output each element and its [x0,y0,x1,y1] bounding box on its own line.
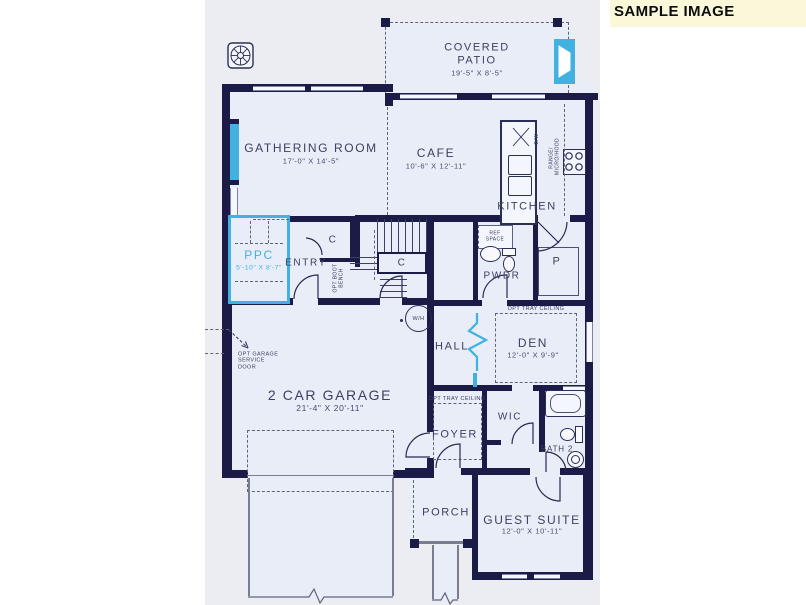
wall [385,93,393,106]
range-icon [563,149,586,175]
window [492,94,545,99]
closet-label-stairs: C [398,257,407,269]
counter-line [564,104,565,216]
porch-post [410,539,419,548]
floor-plan: COVERED PATIO 19'-5" X 8'-5" GATHERING R… [205,0,600,605]
fireplace-icon [554,39,575,84]
garage-dims: 21'-4" X 20'-11" [296,404,363,414]
window [502,574,527,579]
driveway-edge [248,478,250,596]
stair-winders [350,252,377,270]
ppc-dims: 5'-10" X 8'-7" [236,264,282,271]
driveway-edge [392,478,394,596]
room-divider-dash [387,107,388,215]
walkway-edge [457,545,459,599]
sample-image-label: SAMPLE IMAGE [610,0,806,20]
kitchen-label: KITCHEN [497,201,556,214]
porch-post [463,539,472,548]
opt-boot-bench-label: OPT BOOT BENCH [333,262,345,294]
bath-toilet-tank [575,426,583,443]
opt-tray-ceiling-label-foyer: OPT TRAY CEILING [429,396,486,402]
wall [585,93,593,475]
covered-patio-label: COVERED PATIO [444,41,510,66]
bath2-label: BATH 2 [541,444,573,453]
wall [485,440,501,445]
ref-space-label: REF SPACE [483,231,507,243]
service-door-callout-dash [205,353,224,354]
pwdr-toilet-tank [502,248,516,256]
wall [427,215,434,307]
cafe-dims: 10'-6" X 12'-11" [406,163,467,172]
garage-door-dashed-box [247,430,394,492]
wall [318,298,380,305]
wall [472,572,593,580]
porch-edge-dash [413,480,414,538]
window [586,322,594,362]
ppc-label: PPC [244,249,273,263]
bathtub-basin [550,394,581,413]
water-heater-label: W/H [413,315,425,321]
walkway-edge [432,545,434,599]
range-micro-hood-label: RANGE/ MICRO/HOOD [549,141,561,175]
wall [222,84,393,92]
garage-label: 2 CAR GARAGE [268,387,392,403]
pwdr-sink [480,246,501,262]
window [311,86,363,91]
gathering-room-label: GATHERING ROOM [244,142,378,156]
den-label: DEN [518,337,548,351]
opt-garage-service-door-label: OPT GARAGE SERVICE DOOR [238,352,280,371]
driveway [248,478,393,599]
window-cap [230,180,239,185]
hall-label: HALL [435,341,469,354]
closet-divider [268,221,269,243]
window [230,188,238,216]
window [400,94,457,99]
bath-sink-basin [571,455,580,464]
entry-label: ENTRY [285,257,327,269]
kitchen-sink [508,155,532,175]
wic-label: WIC [498,411,522,423]
wall [222,300,232,478]
porch-label: PORCH [422,507,470,520]
water-heater-dot [400,319,403,322]
wall [427,385,512,391]
gathering-room-dims: 17'-0" X 14'-5" [283,158,339,167]
closet-rod [235,281,283,282]
dishwasher-label: D/W [535,134,541,145]
window-cap [230,119,239,124]
opt-tray-ceiling-label-den: OPT TRAY CEILING [508,306,565,312]
opening-dash [253,219,289,220]
covered-patio-dims: 19'-5" X 8'-5" [451,70,503,79]
kitchen-sink [508,176,532,196]
hall-accent [473,373,477,387]
wall [290,216,356,222]
closet-label-entry: C [329,234,338,246]
closet-divider [250,221,251,243]
patio-post [553,18,562,27]
window [534,574,560,579]
guest-suite-dims: 12'-0" X 10'-11" [502,528,563,537]
cafe-label: CAFE [417,147,455,161]
pwdr-label: PWDR [484,270,521,282]
closet-rod [235,243,283,244]
wall [427,458,434,478]
stair-treads [377,219,427,252]
pantry-shelf [538,247,579,296]
wall [583,468,593,580]
compass-icon [227,42,254,69]
accent-window [230,123,239,181]
sample-image-banner: SAMPLE IMAGE [610,0,806,27]
patio-post [381,18,390,27]
pantry-label: P [553,256,562,269]
den-dims: 12'-0" X 9'-9" [507,352,559,361]
window [253,86,305,91]
service-door-callout-dash [205,329,229,330]
stair-treads-lower [380,274,407,298]
stair-rail-dash [374,230,375,280]
fireplace-opening [557,43,572,80]
bath-toilet-bowl [560,428,575,441]
walkway [432,545,459,602]
foyer-label: FOYER [432,429,478,442]
wall [472,468,478,580]
